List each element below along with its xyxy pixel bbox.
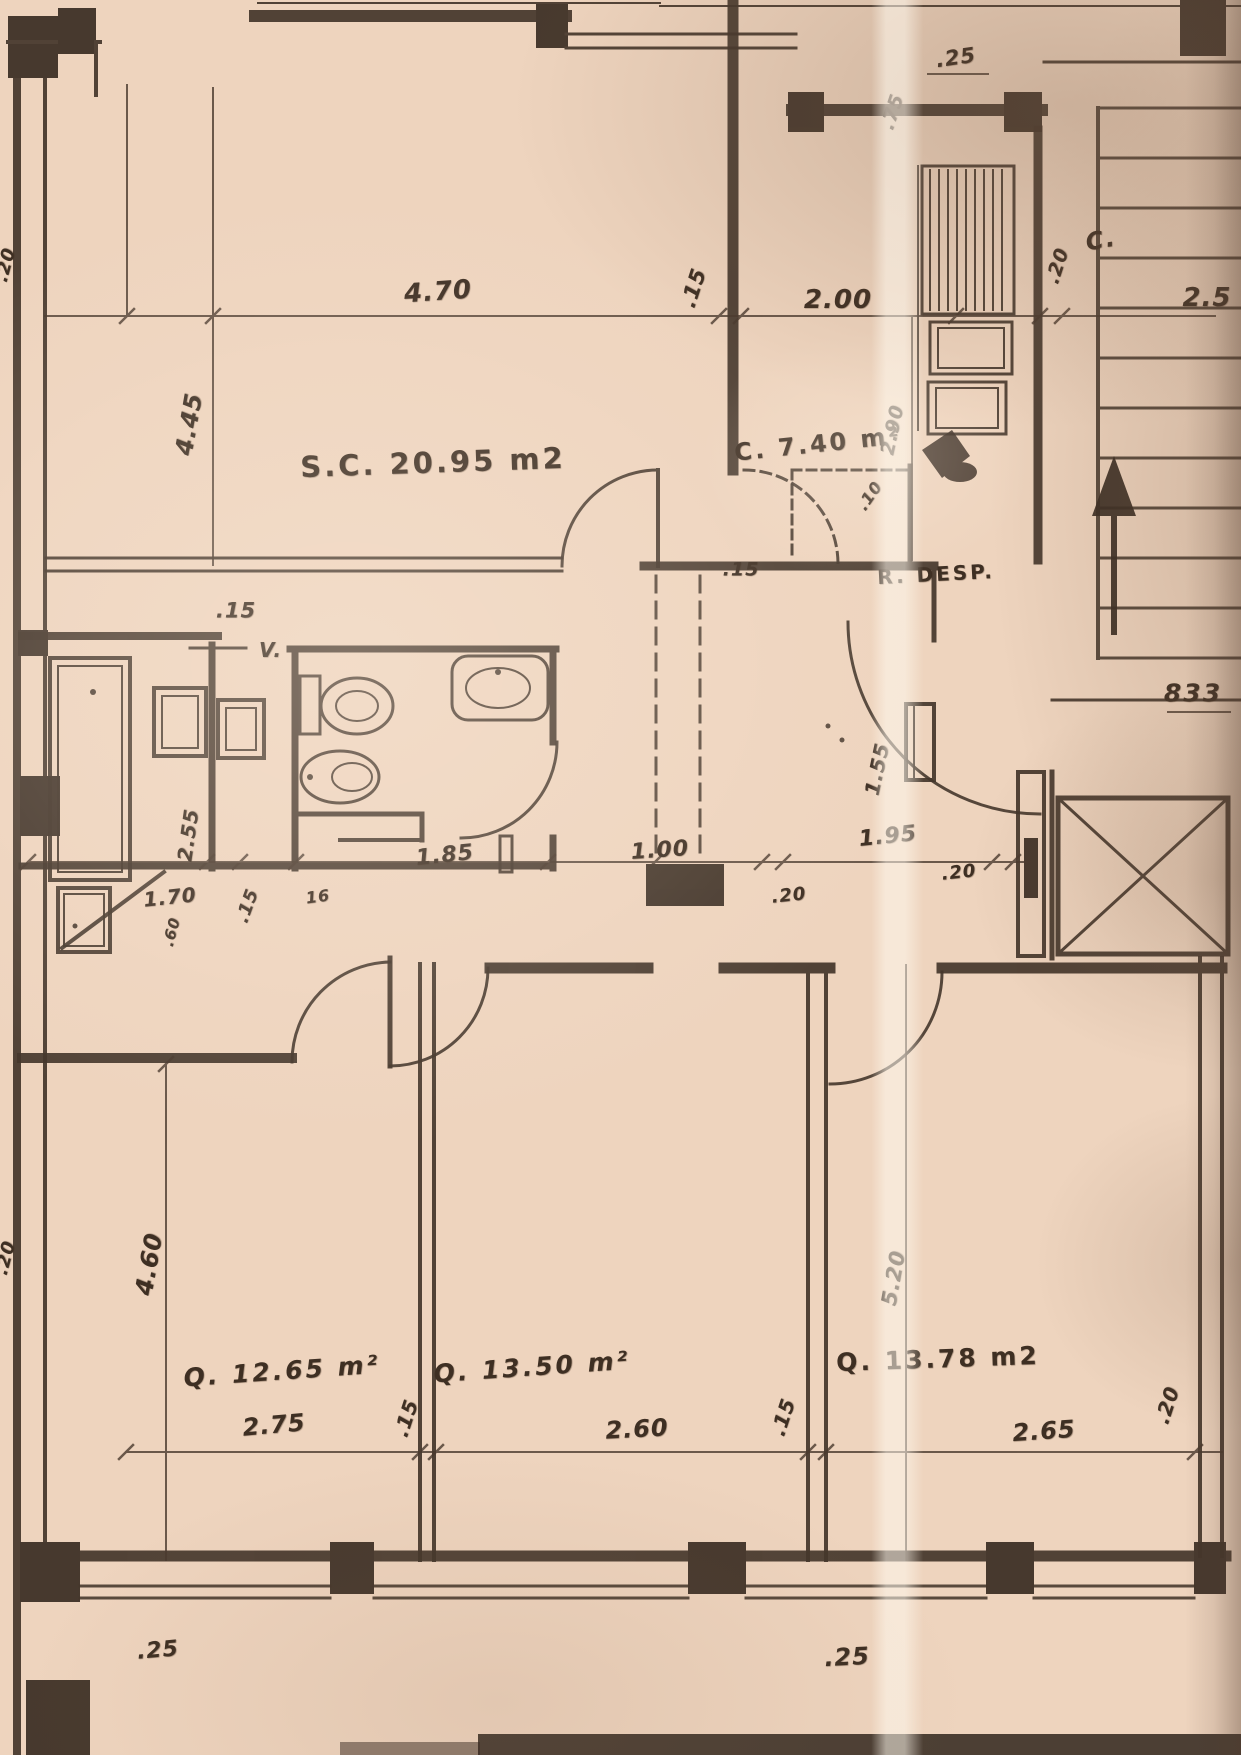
dim-20-b: .20 (941, 862, 978, 884)
dim-195: 1.95 (858, 823, 918, 851)
dim-155: 1.55 (862, 741, 893, 797)
dim-470: 4.70 (403, 277, 473, 308)
pantry-label: R. DESP. (877, 561, 995, 587)
bedroom1-label: Q. 12.65 m² (183, 1352, 381, 1391)
bedroom3-label: Q. 13.78 m2 (836, 1343, 1040, 1375)
dim-260: 2.60 (605, 1415, 669, 1442)
dim-25-bottom-left: .25 (136, 1638, 180, 1664)
dim-265: 2.65 (1012, 1417, 1077, 1445)
dim-20-b3: .20 (1152, 1384, 1183, 1427)
dim-100: 1.00 (630, 838, 690, 864)
dim-185: 1.85 (415, 842, 475, 870)
living-label: S.C. 20.95 m2 (300, 444, 566, 482)
dim-20-left-top: .20 (0, 246, 19, 284)
dim-200: 2.00 (804, 287, 872, 313)
dim-60: .60 (161, 916, 183, 948)
kitchen-label: C. 7.40 m² (733, 423, 903, 464)
dim-25-clipped: 2.5 (1182, 285, 1231, 311)
dim-275: 2.75 (241, 1410, 306, 1439)
dim-15-b2: .15 (768, 1396, 799, 1439)
dim-255: 2.55 (174, 807, 201, 863)
floor-plan: .25.754.70.152.00.20C.2.54.452.90S.C. 20… (0, 0, 1241, 1755)
dim-15-mid: .15 (234, 887, 263, 926)
dim-25-bottom-right: .25 (824, 1644, 871, 1670)
closet-label: C. (1084, 226, 1118, 255)
dim-10: .10 (854, 479, 885, 514)
bedroom2-label: Q. 13.50 m² (433, 1348, 631, 1387)
dim-15-hall: .15 (723, 561, 760, 580)
dim-20-kitchen: .20 (1043, 246, 1072, 287)
dim-20-a: .20 (771, 885, 808, 907)
dim-520: 5.20 (879, 1249, 909, 1308)
dim-460: 4.60 (132, 1231, 167, 1297)
vent-label: V. (259, 640, 283, 660)
sheet-number: 833 (1164, 681, 1222, 706)
labels-layer: .25.754.70.152.00.20C.2.54.452.90S.C. 20… (0, 0, 1241, 1755)
dim-20-left-mid: .20 (0, 1239, 19, 1277)
dim-top-75: .75 (878, 92, 907, 133)
dim-top-25: .25 (935, 45, 978, 71)
dim-15-top-wall: .15 (678, 266, 710, 311)
dim-15-b1: .15 (391, 1397, 422, 1440)
dim-15-bath: .15 (216, 601, 256, 622)
dim-170: 1.70 (142, 884, 197, 909)
dim-16: 16 (305, 887, 331, 906)
dim-445: 4.45 (172, 391, 207, 457)
